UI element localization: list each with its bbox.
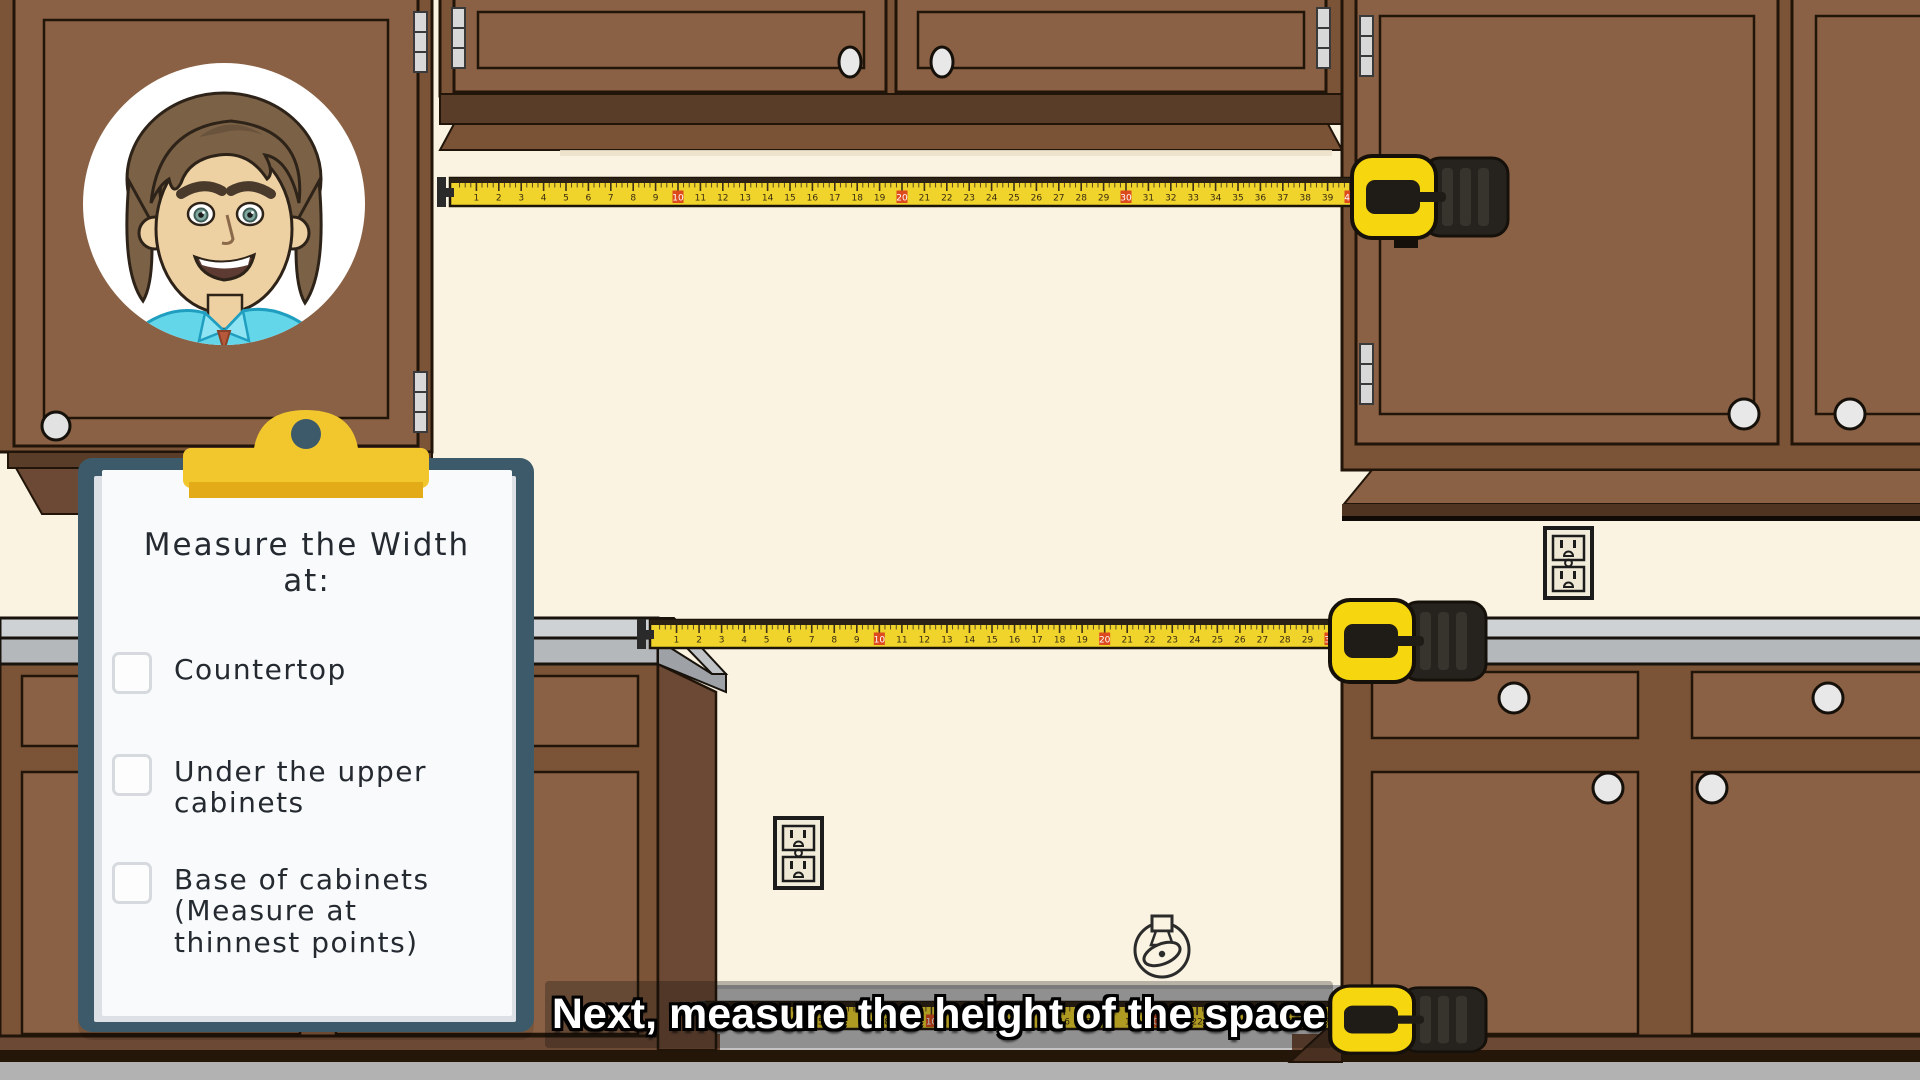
svg-text:13: 13 [739, 194, 750, 204]
svg-text:6: 6 [786, 636, 792, 646]
door-knob [42, 412, 70, 440]
svg-text:14: 14 [762, 194, 774, 204]
svg-text:10: 10 [874, 636, 886, 646]
svg-text:20: 20 [896, 194, 908, 204]
checkbox-base-of-cabinets[interactable] [112, 862, 152, 904]
svg-text:14: 14 [964, 636, 976, 646]
svg-text:9: 9 [854, 636, 860, 646]
power-outlet [775, 818, 822, 888]
svg-text:19: 19 [874, 194, 886, 204]
svg-text:16: 16 [1009, 636, 1021, 646]
svg-text:20: 20 [1099, 636, 1111, 646]
svg-text:26: 26 [1031, 194, 1043, 204]
svg-text:1: 1 [474, 194, 480, 204]
svg-text:19: 19 [1076, 636, 1088, 646]
svg-text:10: 10 [672, 194, 684, 204]
svg-text:17: 17 [1031, 636, 1042, 646]
svg-text:29: 29 [1302, 636, 1314, 646]
measuring-tape-countertop: 1234567891011121314151617181920212223242… [650, 620, 1338, 648]
svg-text:25: 25 [1212, 636, 1223, 646]
svg-text:8: 8 [831, 636, 837, 646]
subtitle-text: Next, measure the height of the space [552, 990, 1326, 1039]
floor [0, 1062, 1920, 1080]
upper-cabinet-middle [440, 0, 1342, 156]
clipboard-paper: Measure the Width at: Countertop Under t… [102, 470, 512, 1016]
door-knob [1729, 399, 1759, 429]
svg-text:15: 15 [986, 636, 997, 646]
svg-text:18: 18 [851, 194, 863, 204]
svg-text:39: 39 [1322, 194, 1334, 204]
drawer [1692, 672, 1920, 738]
checklist-item-base-of-cabinets: Base of cabinets (Measure at thinnest po… [112, 862, 430, 958]
svg-text:33: 33 [1187, 194, 1198, 204]
svg-text:37: 37 [1277, 194, 1288, 204]
door-knob [931, 47, 953, 77]
checkbox-countertop[interactable] [112, 652, 152, 694]
svg-text:4: 4 [741, 636, 747, 646]
svg-text:3: 3 [518, 194, 524, 204]
svg-text:25: 25 [1008, 194, 1019, 204]
svg-text:22: 22 [941, 194, 952, 204]
svg-text:1: 1 [674, 636, 680, 646]
power-outlet [1545, 528, 1592, 598]
svg-text:23: 23 [963, 194, 974, 204]
svg-text:6: 6 [586, 194, 592, 204]
svg-text:28: 28 [1279, 636, 1291, 646]
svg-text:3: 3 [719, 636, 725, 646]
cabinet-hinge-icon [452, 8, 465, 68]
svg-text:18: 18 [1054, 636, 1066, 646]
door-knob [1835, 399, 1865, 429]
cabinet-hinge-icon [414, 12, 427, 72]
svg-text:36: 36 [1255, 194, 1267, 204]
checkbox-under-upper-cabinets[interactable] [112, 754, 152, 796]
clipboard-clip [175, 404, 437, 508]
tape-measure-case [1352, 156, 1508, 238]
cabinet-hinge-icon [1317, 8, 1330, 68]
svg-text:24: 24 [1189, 636, 1201, 646]
cabinet-hinge-icon [1360, 16, 1373, 76]
svg-text:22: 22 [1144, 636, 1155, 646]
svg-text:8: 8 [630, 194, 636, 204]
svg-text:32: 32 [1165, 194, 1176, 204]
checklist-label: Under the upper cabinets [174, 754, 427, 819]
svg-text:5: 5 [563, 194, 569, 204]
clipboard: Measure the Width at: Countertop Under t… [78, 458, 534, 1032]
drawer-knob [1813, 683, 1843, 713]
kick-shadow [0, 1050, 1920, 1062]
checklist-item-countertop: Countertop [112, 652, 347, 694]
svg-text:30: 30 [1120, 194, 1132, 204]
cabinet-hinge-icon [1360, 344, 1373, 404]
svg-text:16: 16 [807, 194, 819, 204]
svg-text:13: 13 [941, 636, 952, 646]
svg-text:34: 34 [1210, 194, 1222, 204]
clipboard-title-line2: at: [102, 564, 512, 600]
svg-text:2: 2 [696, 636, 702, 646]
svg-text:12: 12 [717, 194, 728, 204]
svg-text:15: 15 [784, 194, 795, 204]
cabinet-door [1692, 772, 1920, 1034]
clipboard-title: Measure the Width at: [102, 528, 512, 599]
svg-text:17: 17 [829, 194, 840, 204]
svg-text:9: 9 [653, 194, 659, 204]
kitchen-scene: 1234567891011121314151617181920212223242… [0, 0, 1920, 1080]
svg-text:35: 35 [1232, 194, 1243, 204]
svg-text:26: 26 [1234, 636, 1246, 646]
svg-text:28: 28 [1075, 194, 1087, 204]
checklist-item-under-upper-cabinets: Under the upper cabinets [112, 754, 427, 819]
svg-text:27: 27 [1257, 636, 1268, 646]
checklist-label: Base of cabinets (Measure at thinnest po… [174, 862, 430, 958]
measuring-tape-under-upper-cabinets: 1234567891011121314151617181920212223242… [450, 178, 1358, 206]
svg-text:24: 24 [986, 194, 998, 204]
svg-text:4: 4 [541, 194, 547, 204]
door-knob [839, 47, 861, 77]
svg-text:11: 11 [896, 636, 907, 646]
svg-text:12: 12 [919, 636, 930, 646]
drawer-knob [1499, 683, 1529, 713]
subtitle-bar: Next, measure the height of the space [545, 981, 1333, 1048]
svg-text:23: 23 [1167, 636, 1178, 646]
door-knob [1697, 773, 1727, 803]
clipboard-title-line1: Measure the Width [102, 528, 512, 564]
svg-text:21: 21 [1121, 636, 1132, 646]
svg-text:7: 7 [608, 194, 614, 204]
svg-text:38: 38 [1299, 194, 1311, 204]
svg-text:31: 31 [1143, 194, 1154, 204]
svg-text:11: 11 [695, 194, 706, 204]
svg-text:29: 29 [1098, 194, 1110, 204]
svg-text:7: 7 [809, 636, 815, 646]
svg-text:5: 5 [764, 636, 770, 646]
tape-measure-case [1330, 600, 1486, 682]
svg-text:27: 27 [1053, 194, 1064, 204]
svg-text:21: 21 [919, 194, 930, 204]
svg-text:2: 2 [496, 194, 502, 204]
checklist-label: Countertop [174, 652, 347, 685]
door-knob [1593, 773, 1623, 803]
upper-cabinet-right [1342, 0, 1920, 521]
tape-measure-case [1330, 986, 1486, 1053]
